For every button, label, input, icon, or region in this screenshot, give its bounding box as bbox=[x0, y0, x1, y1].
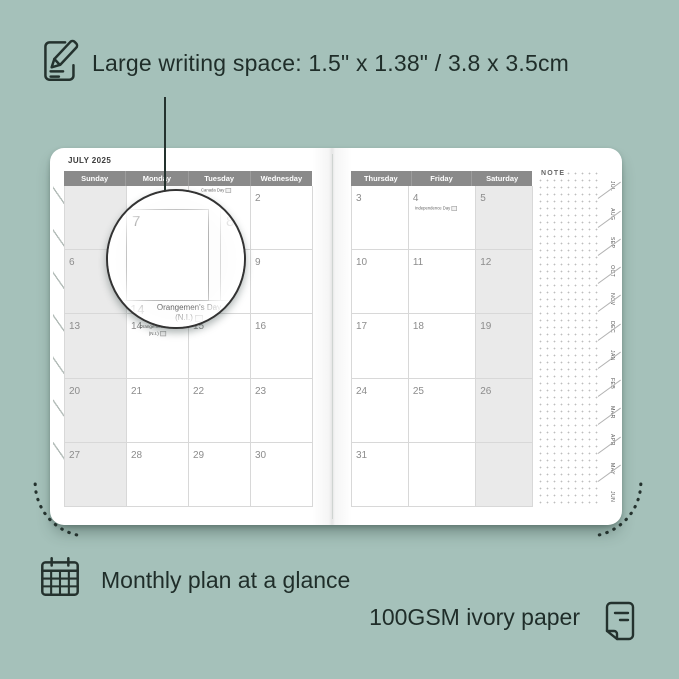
paper-label: 100GSM ivory paper bbox=[270, 604, 580, 631]
date-number: 20 bbox=[69, 386, 80, 397]
holiday-flag-icon bbox=[451, 206, 457, 211]
center-gutter-line bbox=[332, 154, 333, 519]
month-tab: JAN bbox=[601, 342, 622, 370]
holiday-label: Independence Day bbox=[415, 206, 457, 211]
dotted-corner-arc-right bbox=[588, 482, 646, 540]
calendar-cell: 21 bbox=[127, 379, 189, 443]
holiday-flag-icon bbox=[195, 315, 203, 322]
dotted-corner-arc-left bbox=[30, 482, 88, 540]
date-number: 26 bbox=[480, 386, 491, 397]
month-tab: AUG bbox=[601, 200, 622, 228]
month-tab: JUL bbox=[601, 172, 622, 200]
holiday-flag-icon bbox=[160, 331, 166, 336]
day-header-wednesday: Wednesday bbox=[251, 171, 312, 186]
month-tabs: JUL AUG SEP OCT NOV DEC JAN FEB MAR APR … bbox=[601, 172, 622, 511]
holiday-flag-icon bbox=[225, 188, 231, 193]
calendar-cell: 4Independence Day bbox=[409, 186, 476, 250]
calendar-cell: 23 bbox=[251, 379, 313, 443]
month-tab: FEB bbox=[601, 370, 622, 398]
calendar-cell: 25 bbox=[409, 379, 476, 443]
date-number: 18 bbox=[413, 321, 424, 332]
calendar-cell bbox=[409, 443, 476, 507]
calendar-cell: 16 bbox=[251, 314, 313, 378]
calendar-cell: 2 bbox=[251, 186, 313, 250]
date-number: 2 bbox=[255, 193, 261, 204]
date-number: 16 bbox=[255, 321, 266, 332]
calendar-cell: 12 bbox=[476, 250, 533, 314]
date-number: 9 bbox=[255, 257, 261, 268]
calendar-cell: 18 bbox=[409, 314, 476, 378]
paper-sheet-icon bbox=[594, 595, 642, 652]
date-number: 25 bbox=[413, 386, 424, 397]
date-number: 27 bbox=[69, 450, 80, 461]
month-tab: APR bbox=[601, 426, 622, 454]
calendar-cell: 10 bbox=[352, 250, 409, 314]
magnified-date: 7 bbox=[132, 213, 140, 230]
date-number: 17 bbox=[356, 321, 367, 332]
date-number: 6 bbox=[69, 257, 75, 268]
calendar-cell bbox=[476, 443, 533, 507]
month-tab: DEC bbox=[601, 313, 622, 341]
magnified-date: 8 bbox=[226, 213, 234, 230]
magnifier-pointer-line bbox=[164, 97, 166, 191]
product-infographic: Large writing space: 1.5" x 1.38" / 3.8 … bbox=[0, 0, 679, 679]
magnified-holiday-label: Orangemen's Day (N.I.) bbox=[150, 303, 228, 324]
month-tab: OCT bbox=[601, 257, 622, 285]
date-number: 12 bbox=[480, 257, 491, 268]
date-number: 29 bbox=[193, 450, 204, 461]
calendar-cell: 9 bbox=[251, 250, 313, 314]
calendar-cell: 29 bbox=[189, 443, 251, 507]
calendar-cell: 28 bbox=[127, 443, 189, 507]
day-header-monday: Monday bbox=[126, 171, 188, 186]
magnified-date: 14 bbox=[130, 302, 144, 317]
calendar-cell: 22 bbox=[189, 379, 251, 443]
date-number: 13 bbox=[69, 321, 80, 332]
day-header-sunday: Sunday bbox=[64, 171, 126, 186]
pencil-note-icon bbox=[36, 33, 86, 92]
calendar-cell: 31 bbox=[352, 443, 409, 507]
date-number: 30 bbox=[255, 450, 266, 461]
calendar-cell: 19 bbox=[476, 314, 533, 378]
date-number: 24 bbox=[356, 386, 367, 397]
note-dot-grid: NOTE bbox=[537, 170, 600, 507]
magnifier-circle: 7 8 14 Orangemen's Day (N.I.) bbox=[106, 189, 246, 329]
calendar-cell: 26 bbox=[476, 379, 533, 443]
day-header-thursday: Thursday bbox=[351, 171, 412, 186]
date-number: 5 bbox=[480, 193, 486, 204]
monthly-glance-label: Monthly plan at a glance bbox=[101, 567, 350, 594]
date-number: 11 bbox=[413, 257, 423, 268]
calendar-cell: 13 bbox=[65, 314, 127, 378]
calendar-cell: 5 bbox=[476, 186, 533, 250]
writing-space-label: Large writing space: 1.5" x 1.38" / 3.8 … bbox=[92, 50, 569, 77]
month-tab: NOV bbox=[601, 285, 622, 313]
date-number: 21 bbox=[131, 386, 142, 397]
note-label: NOTE bbox=[539, 170, 567, 177]
date-number: 23 bbox=[255, 386, 266, 397]
calendar-cell: 30 bbox=[251, 443, 313, 507]
day-header-tuesday: Tuesday bbox=[189, 171, 251, 186]
month-tab: MAR bbox=[601, 398, 622, 426]
day-header-friday: Friday bbox=[412, 171, 473, 186]
calendar-cell: 17 bbox=[352, 314, 409, 378]
calendar-cell: 11 bbox=[409, 250, 476, 314]
calendar-cell: 24 bbox=[352, 379, 409, 443]
month-tab: SEP bbox=[601, 229, 622, 257]
month-title: JULY 2025 bbox=[68, 156, 111, 165]
date-number: 3 bbox=[356, 193, 362, 204]
calendar-cell: 3 bbox=[352, 186, 409, 250]
holiday-label: Canada Day bbox=[201, 188, 231, 193]
calendar-cell: 20 bbox=[65, 379, 127, 443]
date-number: 22 bbox=[193, 386, 204, 397]
day-header-row-right: Thursday Friday Saturday bbox=[351, 171, 532, 186]
date-number: 10 bbox=[356, 257, 367, 268]
magnified-grid-line bbox=[220, 195, 221, 301]
date-number: 4 bbox=[413, 193, 419, 204]
date-number: 31 bbox=[356, 450, 367, 461]
calendar-grid-icon bbox=[35, 552, 85, 607]
day-header-saturday: Saturday bbox=[472, 171, 532, 186]
month-tab: MAY bbox=[601, 455, 622, 483]
day-header-row-left: Sunday Monday Tuesday Wednesday bbox=[64, 171, 312, 186]
date-number: 28 bbox=[131, 450, 142, 461]
calendar-grid-right: 3 4Independence Day 5 10 11 12 17 18 19 … bbox=[351, 186, 533, 507]
date-number: 19 bbox=[480, 321, 491, 332]
